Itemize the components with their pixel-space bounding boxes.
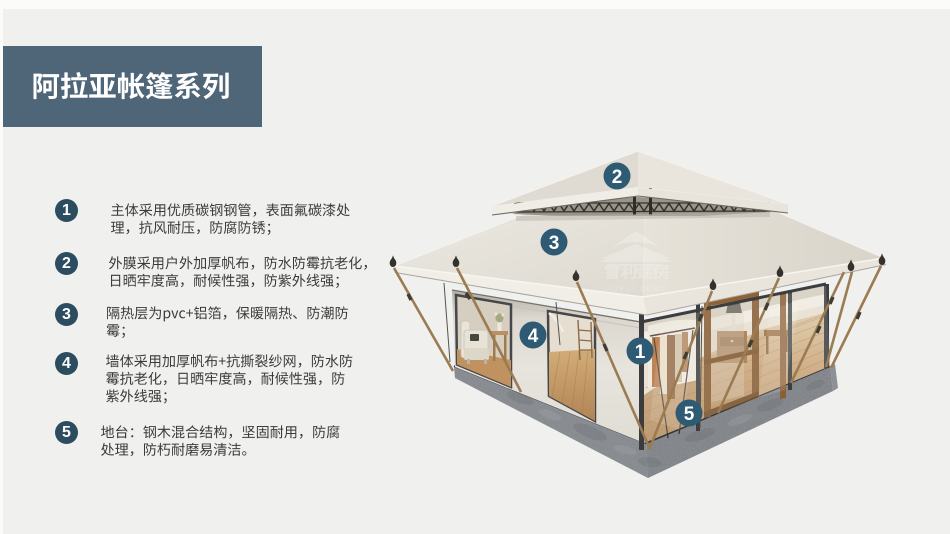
svg-text:2: 2 [612, 167, 623, 188]
svg-text:XUELI TENT: XUELI TENT [606, 286, 666, 293]
svg-text:3: 3 [549, 233, 560, 254]
svg-text:1: 1 [635, 342, 646, 363]
svg-text:5: 5 [684, 404, 695, 425]
svg-text:4: 4 [528, 326, 539, 347]
